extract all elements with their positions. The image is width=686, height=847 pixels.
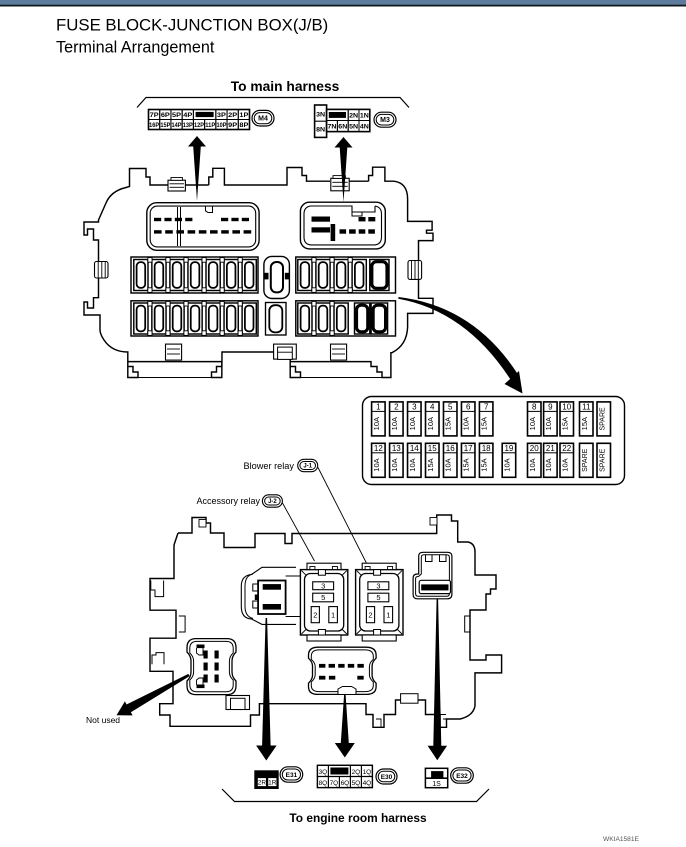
svg-text:1N: 1N: [360, 113, 369, 120]
svg-text:3Q: 3Q: [319, 769, 328, 776]
svg-text:6N: 6N: [338, 124, 347, 131]
svg-text:E31: E31: [286, 772, 298, 779]
svg-text:10: 10: [562, 403, 571, 412]
svg-text:2Q: 2Q: [352, 769, 361, 776]
svg-text:E30: E30: [381, 774, 393, 781]
svg-text:10A: 10A: [502, 458, 511, 471]
svg-text:10A: 10A: [444, 458, 453, 471]
svg-text:11P: 11P: [205, 122, 215, 129]
svg-text:5Q: 5Q: [352, 780, 361, 787]
svg-text:5N: 5N: [349, 124, 358, 131]
svg-text:3: 3: [412, 403, 417, 412]
svg-text:Not used: Not used: [86, 715, 120, 725]
svg-text:2N: 2N: [349, 113, 358, 120]
svg-text:16P: 16P: [149, 122, 159, 129]
svg-text:10A: 10A: [408, 417, 417, 430]
svg-text:6: 6: [466, 403, 471, 412]
svg-text:Accessory relay: Accessory relay: [196, 496, 260, 506]
svg-text:15A: 15A: [444, 417, 453, 430]
svg-text:10A: 10A: [528, 458, 537, 471]
svg-text:9P: 9P: [228, 122, 237, 129]
svg-text:6P: 6P: [161, 112, 170, 119]
svg-text:10A: 10A: [408, 458, 417, 471]
svg-text:15A: 15A: [480, 458, 489, 471]
svg-text:5: 5: [448, 403, 453, 412]
svg-text:3P: 3P: [217, 112, 226, 119]
svg-text:Blower relay: Blower relay: [243, 461, 294, 471]
svg-text:2R: 2R: [258, 780, 267, 787]
svg-text:FUSE BLOCK-JUNCTION BOX(J/B): FUSE BLOCK-JUNCTION BOX(J/B): [56, 16, 328, 35]
svg-text:To engine room harness: To engine room harness: [289, 811, 427, 825]
svg-text:3: 3: [321, 581, 325, 590]
svg-text:15P: 15P: [160, 122, 170, 129]
svg-text:15A: 15A: [480, 417, 489, 430]
svg-text:13: 13: [392, 444, 401, 453]
svg-text:12P: 12P: [194, 122, 204, 129]
svg-text:22: 22: [562, 444, 571, 453]
svg-text:10A: 10A: [544, 417, 553, 430]
svg-text:To main harness: To main harness: [231, 79, 340, 94]
svg-text:1Q: 1Q: [363, 769, 372, 776]
svg-text:3N: 3N: [316, 112, 325, 119]
svg-text:8N: 8N: [316, 127, 325, 134]
svg-text:E32: E32: [456, 773, 468, 780]
svg-text:4Q: 4Q: [363, 780, 372, 787]
svg-text:15: 15: [428, 444, 437, 453]
svg-text:20: 20: [530, 444, 539, 453]
svg-text:8: 8: [532, 403, 537, 412]
svg-text:4P: 4P: [183, 112, 192, 119]
svg-text:WKIA1581E: WKIA1581E: [603, 836, 640, 843]
svg-text:10A: 10A: [544, 458, 553, 471]
svg-text:SPARE: SPARE: [599, 407, 606, 431]
svg-text:10A: 10A: [560, 458, 569, 471]
svg-text:17: 17: [464, 444, 473, 453]
svg-text:19: 19: [504, 444, 513, 453]
svg-text:J-2: J-2: [268, 499, 277, 505]
svg-text:10A: 10A: [372, 458, 381, 471]
svg-text:8Q: 8Q: [319, 780, 328, 787]
svg-text:2P: 2P: [228, 112, 237, 119]
svg-text:9: 9: [548, 403, 553, 412]
svg-text:4: 4: [430, 403, 435, 412]
svg-text:1S: 1S: [432, 781, 441, 788]
svg-text:14P: 14P: [172, 122, 182, 129]
svg-text:18: 18: [482, 444, 491, 453]
svg-text:14: 14: [410, 444, 419, 453]
svg-text:7N: 7N: [328, 124, 337, 131]
svg-text:7: 7: [484, 403, 489, 412]
svg-text:J-1: J-1: [303, 464, 312, 470]
svg-text:10A: 10A: [528, 417, 537, 430]
svg-text:2: 2: [394, 403, 399, 412]
svg-text:10A: 10A: [372, 417, 381, 430]
svg-text:15A: 15A: [462, 458, 471, 471]
svg-text:7P: 7P: [150, 112, 159, 119]
svg-text:3: 3: [376, 581, 380, 590]
svg-text:M3: M3: [380, 117, 390, 124]
svg-text:SPARE: SPARE: [582, 448, 589, 472]
svg-text:6Q: 6Q: [341, 780, 350, 787]
svg-text:SPARE: SPARE: [599, 448, 606, 472]
svg-text:1R: 1R: [268, 780, 277, 787]
svg-text:16: 16: [446, 444, 455, 453]
svg-text:10A: 10A: [426, 417, 435, 430]
svg-text:1: 1: [376, 403, 381, 412]
svg-text:2: 2: [313, 610, 317, 619]
svg-text:5: 5: [321, 593, 325, 602]
svg-text:15A: 15A: [580, 417, 589, 430]
svg-text:15A: 15A: [426, 458, 435, 471]
svg-text:11: 11: [582, 403, 591, 412]
svg-text:1: 1: [331, 610, 335, 619]
svg-text:1P: 1P: [239, 112, 248, 119]
svg-text:10A: 10A: [462, 417, 471, 430]
svg-text:4N: 4N: [360, 124, 369, 131]
svg-text:5: 5: [376, 593, 380, 602]
svg-text:1: 1: [386, 610, 390, 619]
svg-text:10P: 10P: [216, 122, 226, 129]
svg-text:M4: M4: [258, 116, 268, 123]
svg-text:2: 2: [368, 610, 372, 619]
svg-text:15A: 15A: [560, 417, 569, 430]
svg-text:10A: 10A: [390, 417, 399, 430]
svg-text:12: 12: [374, 444, 383, 453]
svg-text:10A: 10A: [390, 458, 399, 471]
svg-text:8P: 8P: [239, 122, 248, 129]
svg-text:7Q: 7Q: [330, 780, 339, 787]
svg-text:13P: 13P: [183, 122, 193, 129]
svg-text:5P: 5P: [172, 112, 181, 119]
svg-text:21: 21: [546, 444, 555, 453]
svg-text:Terminal Arrangement: Terminal Arrangement: [56, 39, 215, 57]
